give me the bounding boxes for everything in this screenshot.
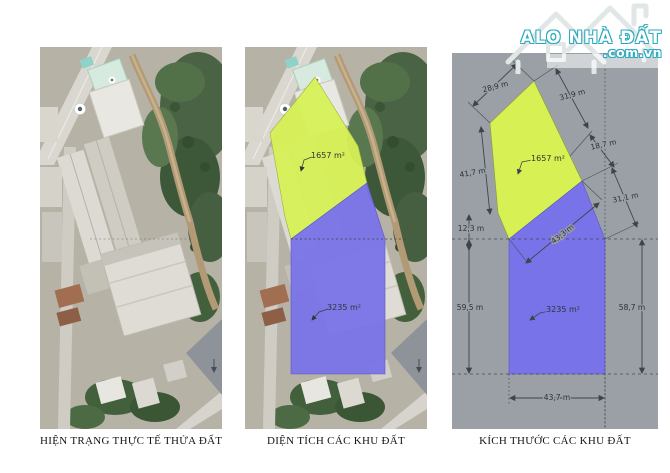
zone-yellow-area-label: 1657 m²	[531, 154, 565, 163]
dimension-label: 58,7 m	[619, 303, 645, 312]
dimensions-svg: 1657 m² 3235 m² 28,9 m31,9 m18,7 m41,7 m…	[452, 53, 658, 429]
dimension-label: 12,3 m	[458, 224, 484, 233]
zone-yellow-area-label: 1657 m²	[311, 151, 345, 160]
real-estate-listing-image: ALO NHÀ ĐẤT .com.vn	[0, 0, 670, 473]
dimension-label: 59,5 m	[457, 303, 483, 312]
caption-current-state: HIỆN TRẠNG THỰC TẾ THỬA ĐẤT	[40, 435, 222, 447]
caption-areas: DIỆN TÍCH CÁC KHU ĐẤT	[245, 435, 427, 447]
house-chimney	[634, 6, 646, 24]
panel-areas: 1657 m² 3235 m²	[245, 47, 427, 429]
brand-logo: ALO NHÀ ĐẤT .com.vn	[442, 28, 662, 60]
dimension-label: 43,7 m	[544, 393, 570, 402]
caption-dimensions: KÍCH THƯỚC CÁC KHU ĐẤT	[452, 435, 658, 447]
zone-blue-area-label: 3235 m²	[546, 305, 580, 314]
satellite-map	[40, 47, 222, 429]
area-overlay-map: 1657 m² 3235 m²	[245, 47, 427, 429]
zone-blue-area-label: 3235 m²	[327, 303, 361, 312]
panel-dimensions: 1657 m² 3235 m² 28,9 m31,9 m18,7 m41,7 m…	[452, 53, 658, 429]
satellite-base	[40, 47, 222, 429]
panel-current-state	[40, 47, 222, 429]
